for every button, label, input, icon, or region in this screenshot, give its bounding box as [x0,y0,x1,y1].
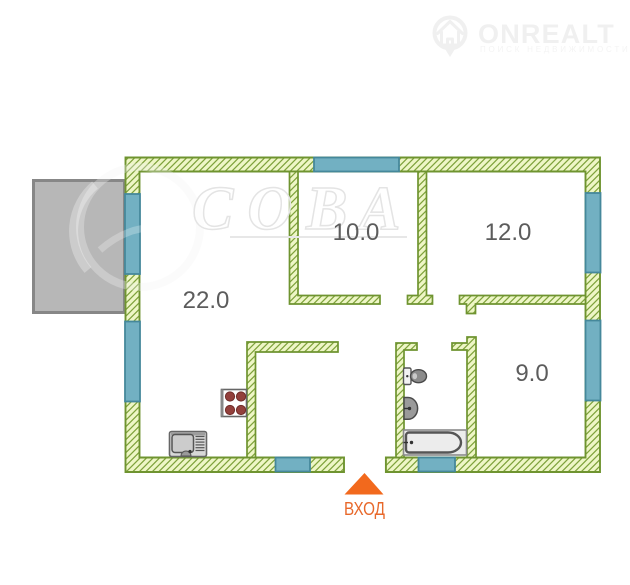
svg-text:9.0: 9.0 [515,360,548,387]
svg-text:СОВА: СОВА [192,175,414,243]
svg-text:12.0: 12.0 [485,219,532,246]
svg-text:22.0: 22.0 [183,287,230,314]
svg-text:10.0: 10.0 [333,219,380,246]
svg-text:ВХОД: ВХОД [344,498,385,519]
svg-text:ПОИСК НЕДВИЖИМОСТИ: ПОИСК НЕДВИЖИМОСТИ [480,45,630,54]
